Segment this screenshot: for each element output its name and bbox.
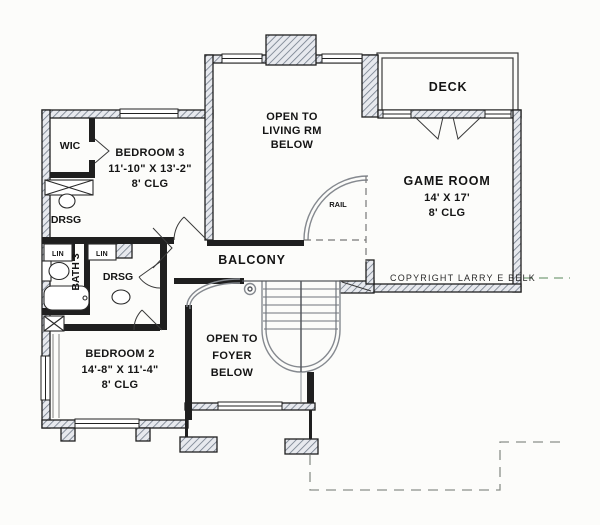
tub-faucet <box>83 296 87 300</box>
wall-bedroom2-top <box>64 324 160 331</box>
wall-living-left <box>205 55 213 240</box>
bedroom2-bay-post-right <box>136 428 150 441</box>
game-room-name: GAME ROOM <box>403 174 490 188</box>
deck-label: DECK <box>429 80 468 94</box>
open-living-line1: OPEN TO <box>266 111 318 123</box>
game-room-clg: 8' CLG <box>429 207 466 219</box>
bay-pillar-left <box>180 437 217 452</box>
game-room-dims: 14' X 17' <box>424 192 470 204</box>
bay-connector-left <box>185 410 188 437</box>
bedroom3-clg: 8' CLG <box>132 178 169 190</box>
wall-balcony-top <box>207 240 304 246</box>
wall-living-right <box>362 55 378 117</box>
bedroom2-dims: 14'-8" X 11'-4" <box>81 364 158 376</box>
open-living-line2: LIVING RM <box>262 125 322 137</box>
open-foyer-line3: BELOW <box>211 367 254 379</box>
drsg-upper-stool <box>59 194 75 208</box>
open-foyer-line1: OPEN TO <box>206 333 258 345</box>
bathtub <box>44 286 89 310</box>
balcony-label: BALCONY <box>218 253 285 267</box>
wall-wic-bottom <box>50 172 95 178</box>
open-foyer-line2: FOYER <box>212 350 251 362</box>
floor-plan: WIC BEDROOM 3 11'-10" X 13'-2" 8' CLG OP… <box>0 0 600 525</box>
rail-label: RAIL <box>329 200 347 209</box>
bedroom3-dims: 11'-10" X 13'-2" <box>108 163 191 175</box>
wall-game-left-stub <box>366 260 374 284</box>
floor-plan-svg: WIC BEDROOM 3 11'-10" X 13'-2" 8' CLG OP… <box>0 0 600 525</box>
drsg-upper-label: DRSG <box>51 214 81 226</box>
toilet-bowl <box>49 263 69 280</box>
bath3-label: BATH 3 <box>70 253 82 290</box>
wall-bedroom3-bottom <box>42 237 174 244</box>
open-living-line3: BELOW <box>271 139 314 151</box>
bedroom2-bay-post-left <box>61 428 75 441</box>
bedroom2-clg: 8' CLG <box>102 379 139 391</box>
lin-right-label: LIN <box>96 251 108 258</box>
drsg-lower-stool <box>112 290 130 304</box>
linen-hatch-box <box>116 243 132 258</box>
bedroom2-name: BEDROOM 2 <box>85 348 154 360</box>
lin-left-label: LIN <box>52 251 64 258</box>
chimney <box>266 35 316 65</box>
copyright-text: COPYRIGHT LARRY E BELK <box>390 273 536 283</box>
bay-pillar-right <box>285 439 318 454</box>
bay-connector-right <box>309 410 312 439</box>
drsg-lower-label: DRSG <box>103 271 133 283</box>
wall-wic-right-lower <box>89 160 95 178</box>
wall-game-right <box>513 110 521 292</box>
wall-foyer-left <box>185 305 192 420</box>
wall-foyer-right <box>307 372 314 403</box>
wall-wic-right-upper <box>89 118 95 142</box>
wic-label: WIC <box>60 140 81 152</box>
bedroom3-name: BEDROOM 3 <box>115 147 184 159</box>
